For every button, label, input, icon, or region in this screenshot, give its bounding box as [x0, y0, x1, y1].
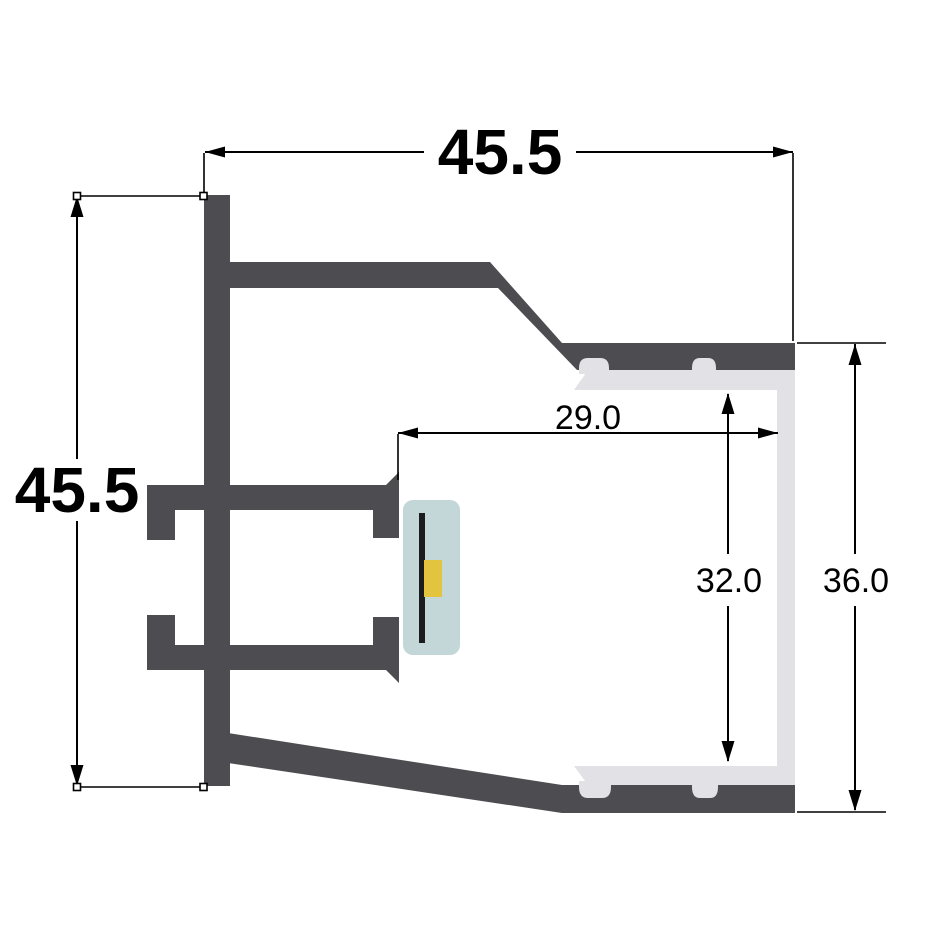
- profile-top-arm-and-flange: [230, 262, 795, 370]
- left-height-label: 45.5: [15, 454, 140, 526]
- diffuser-bottom-bump-right: [692, 781, 718, 798]
- datum-square-bottom-left: [74, 784, 81, 791]
- arrow-left-icon: [205, 147, 225, 158]
- arrow-up-icon: [849, 344, 862, 365]
- datum-square-top-left: [74, 193, 81, 200]
- top-width-label: 45.5: [438, 116, 563, 188]
- inner-height-label: 32.0: [696, 562, 762, 600]
- arrow-down-icon: [722, 741, 735, 762]
- arrow-left-icon: [398, 428, 418, 439]
- datum-square-bottom-right: [200, 784, 207, 791]
- diffuser-top-bump-right: [692, 358, 716, 374]
- diffuser-bottom-bump-left: [579, 781, 611, 798]
- datum-square-top-right: [200, 193, 207, 200]
- aluminium-profile: [147, 195, 795, 813]
- profile-drawing-svg: 45.5 45.5 29.0: [0, 0, 930, 930]
- diffuser-top-bump-left: [579, 358, 609, 374]
- inner-width-label: 29.0: [555, 399, 621, 437]
- dimension-inner-width: 29.0: [398, 399, 778, 480]
- profile-lower-middle-arm: [147, 615, 399, 683]
- dimension-inner-height: 32.0: [696, 393, 762, 762]
- dimension-top-width: 45.5: [204, 116, 793, 341]
- technical-drawing-canvas: 45.5 45.5 29.0: [0, 0, 930, 930]
- arrow-right-icon: [758, 428, 778, 439]
- arrow-up-icon: [722, 393, 735, 414]
- arrow-down-icon: [849, 790, 862, 811]
- led-module: [403, 500, 460, 655]
- dimension-right-height: 36.0: [797, 343, 889, 812]
- led-chip: [424, 560, 442, 597]
- profile-upper-middle-arm: [147, 472, 399, 540]
- right-height-label: 36.0: [823, 562, 889, 600]
- arrow-right-icon: [773, 147, 793, 158]
